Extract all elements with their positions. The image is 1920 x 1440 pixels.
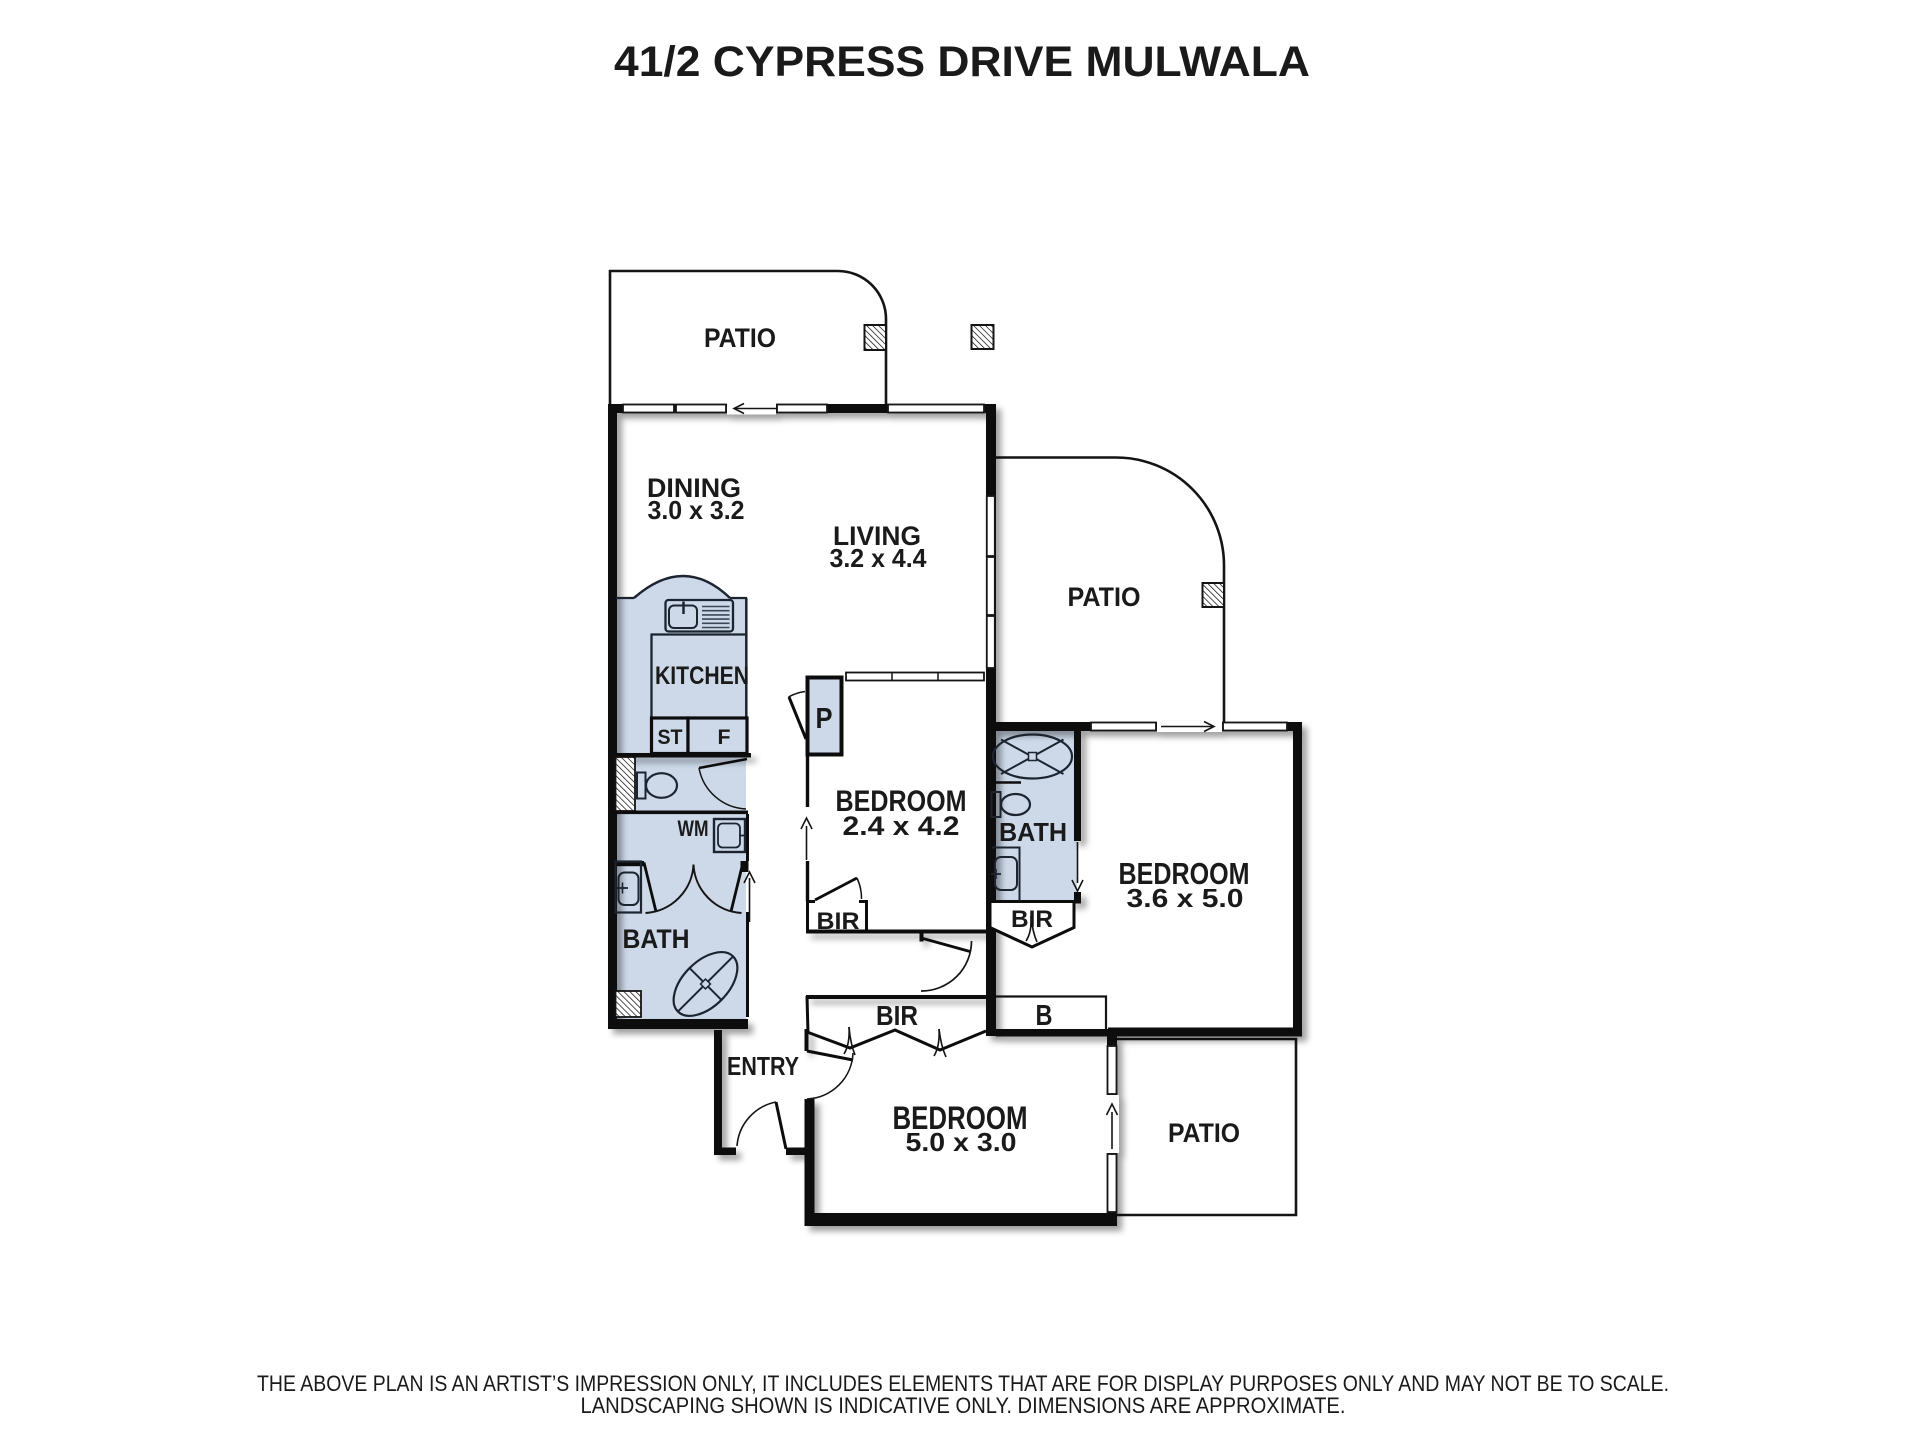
svg-text:41/2 CYPRESS DRIVE MULWALA: 41/2 CYPRESS DRIVE MULWALA [614, 38, 1310, 86]
svg-text:BIR: BIR [817, 908, 860, 935]
svg-text:PATIO: PATIO [1168, 1118, 1240, 1148]
svg-text:P: P [816, 703, 833, 735]
svg-text:BATH: BATH [999, 817, 1067, 847]
svg-text:BIR: BIR [876, 1000, 918, 1031]
svg-text:WM: WM [678, 816, 709, 841]
svg-text:BATH: BATH [623, 924, 690, 954]
svg-text:KITCHEN: KITCHEN [655, 662, 749, 690]
svg-text:3.2 x 4.4: 3.2 x 4.4 [830, 543, 928, 573]
svg-text:F: F [718, 726, 731, 749]
svg-text:3.6 x 5.0: 3.6 x 5.0 [1127, 883, 1244, 913]
svg-text:LANDSCAPING SHOWN IS INDICATIV: LANDSCAPING SHOWN IS INDICATIVE ONLY. DI… [581, 1393, 1346, 1418]
svg-text:B: B [1036, 1000, 1053, 1032]
svg-text:3.0 x 3.2: 3.0 x 3.2 [648, 495, 745, 525]
svg-text:5.0 x 3.0: 5.0 x 3.0 [906, 1127, 1017, 1157]
svg-text:PATIO: PATIO [704, 323, 776, 353]
svg-text:ST: ST [658, 726, 683, 749]
svg-text:ENTRY: ENTRY [727, 1051, 799, 1081]
svg-text:PATIO: PATIO [1068, 582, 1141, 612]
svg-text:2.4 x 4.2: 2.4 x 4.2 [843, 811, 960, 841]
